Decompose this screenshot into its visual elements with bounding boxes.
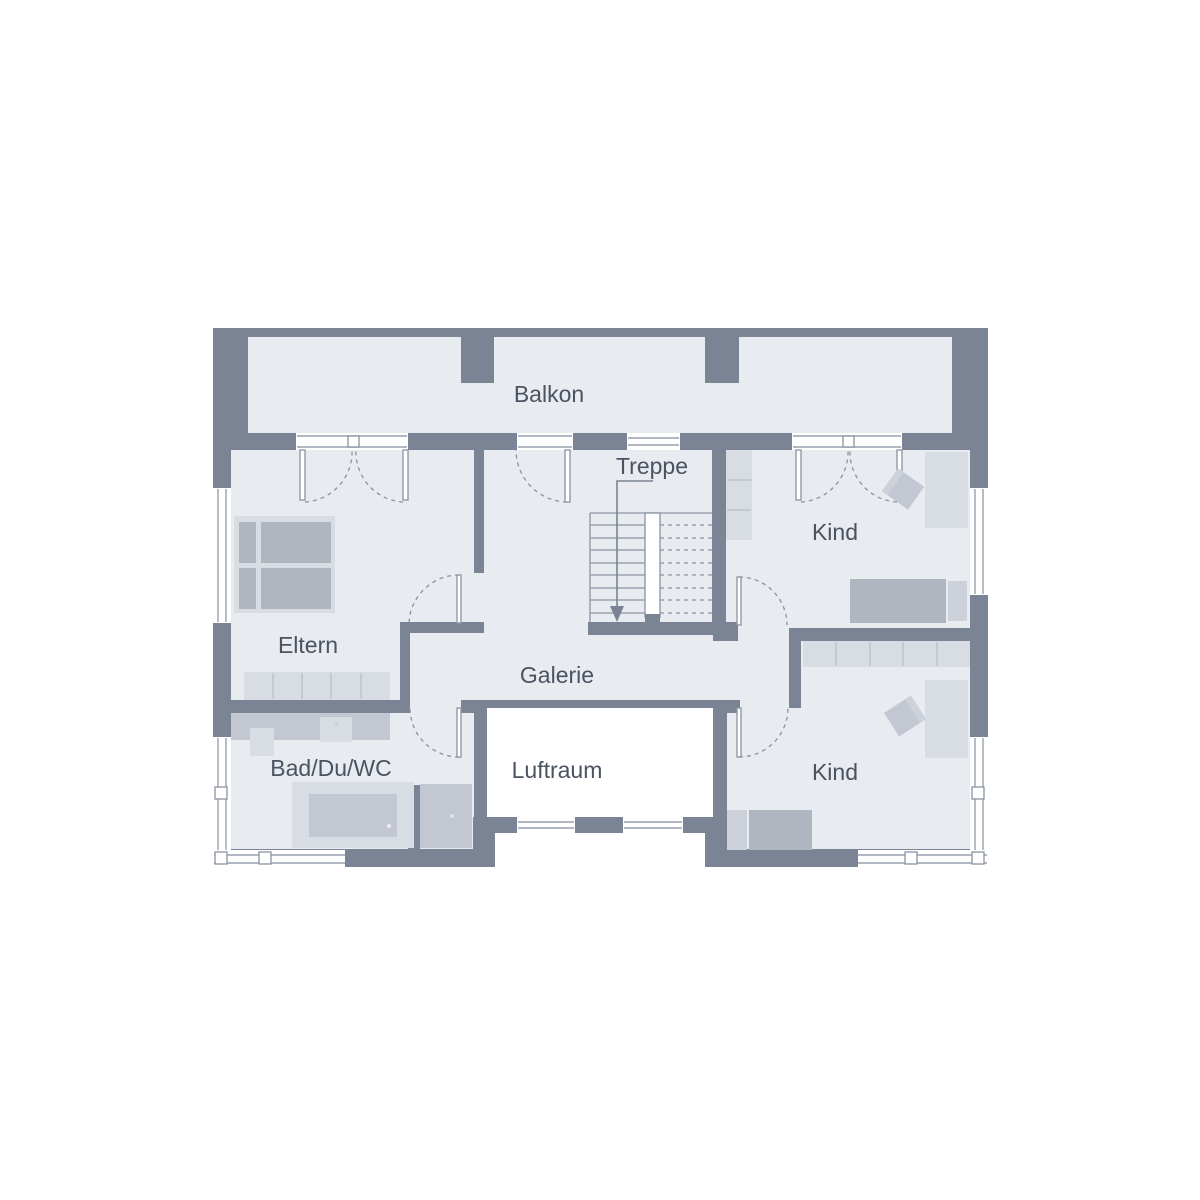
wall-segment — [790, 628, 970, 641]
wardrobe-kind-bottom — [803, 641, 970, 667]
label-luftraum: Luftraum — [512, 757, 603, 783]
voids — [487, 708, 713, 878]
luftraum-wall-right — [713, 700, 727, 833]
balcony-pier — [461, 336, 494, 383]
wall-segment — [713, 700, 740, 713]
label-bad: Bad/Du/WC — [270, 755, 391, 781]
stair-handrail — [645, 513, 660, 617]
wall-segment — [789, 628, 801, 708]
wall-segment — [474, 450, 484, 573]
wall-segment — [400, 622, 410, 713]
wall-segment — [213, 328, 988, 337]
wall-segment — [400, 622, 484, 633]
label-galerie: Galerie — [520, 662, 594, 688]
entrance-recess — [495, 833, 705, 878]
wall-segment — [213, 328, 248, 450]
stair-handrail-cap — [645, 614, 660, 625]
luftraum-wall-bottom — [473, 817, 723, 833]
wardrobe-eltern — [244, 672, 390, 700]
washbasin — [250, 728, 274, 756]
shower — [420, 784, 472, 848]
label-balkon: Balkon — [514, 381, 584, 407]
wall-segment — [713, 622, 738, 641]
desk-kind-top — [925, 452, 968, 528]
wall-segment — [473, 817, 495, 867]
floor-plan-page: Balkon Treppe Kind Eltern Galerie Bad/Du… — [0, 0, 1200, 1200]
bed-kind-bottom — [727, 810, 812, 850]
label-kind-bottom: Kind — [812, 759, 858, 785]
kind-top-window — [970, 488, 988, 595]
luftraum-window-left — [517, 817, 575, 833]
stair-wall — [712, 450, 726, 635]
desk-kind-bottom — [925, 680, 968, 758]
balcony-pier — [705, 336, 739, 383]
washbasin — [320, 717, 352, 742]
luftraum-wall-left — [474, 700, 487, 833]
bed-eltern — [234, 516, 335, 613]
floor-plan: Balkon Treppe Kind Eltern Galerie Bad/Du… — [0, 0, 1200, 1200]
wardrobe-kind-top — [726, 450, 752, 540]
wall-segment — [952, 328, 988, 450]
wall-segment — [213, 700, 410, 713]
label-treppe: Treppe — [616, 453, 688, 479]
wall-segment — [705, 817, 727, 859]
hall-balcony-window — [627, 433, 680, 450]
balcony-floor — [248, 336, 952, 433]
eltern-window — [213, 488, 231, 623]
bathtub — [292, 782, 414, 848]
luftraum-window-right — [623, 817, 683, 833]
label-eltern: Eltern — [278, 632, 338, 658]
luftraum-parapet — [487, 700, 713, 708]
bed-kind-top — [850, 579, 967, 623]
label-kind-top: Kind — [812, 519, 858, 545]
